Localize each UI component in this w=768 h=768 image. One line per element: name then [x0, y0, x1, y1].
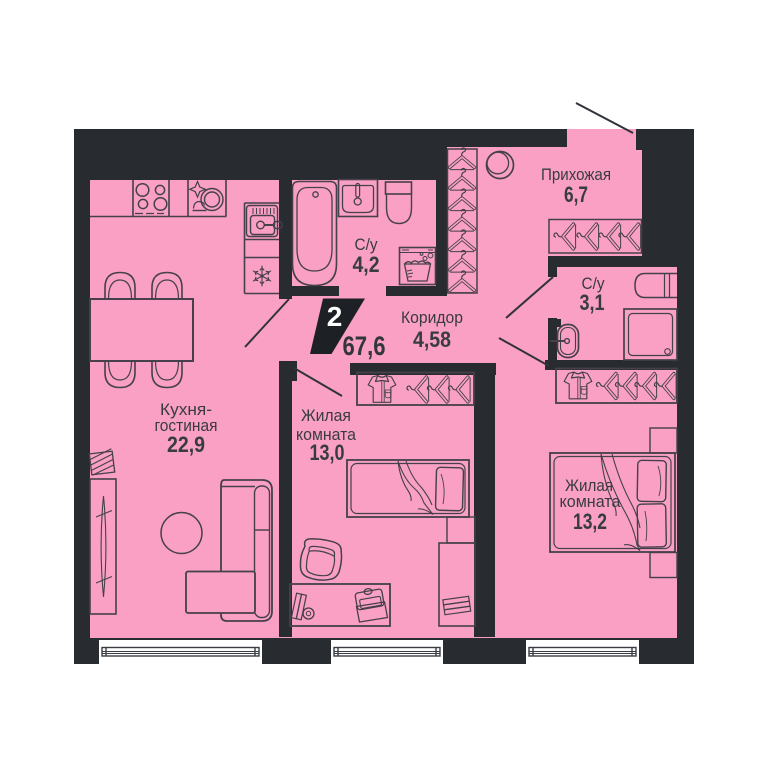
svg-text:Жилая: Жилая [301, 406, 351, 425]
svg-text:4,2: 4,2 [353, 252, 380, 277]
svg-text:4,58: 4,58 [413, 327, 451, 352]
svg-text:13,0: 13,0 [310, 440, 345, 465]
svg-text:22,9: 22,9 [167, 432, 205, 457]
svg-text:13,2: 13,2 [573, 509, 607, 534]
svg-text:6,7: 6,7 [564, 182, 588, 207]
svg-text:67,6: 67,6 [343, 331, 386, 361]
svg-text:2: 2 [327, 301, 343, 332]
svg-text:Коридор: Коридор [401, 308, 463, 327]
svg-text:3,1: 3,1 [580, 290, 605, 315]
